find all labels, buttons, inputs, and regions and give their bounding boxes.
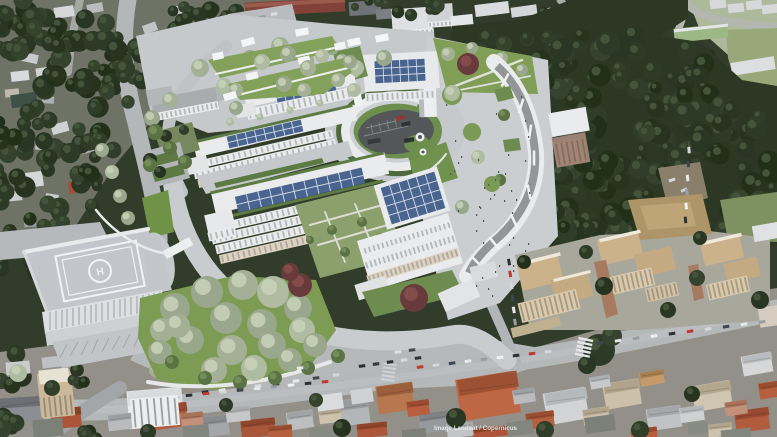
svg-text:Image Landsat / Copernicus: Image Landsat / Copernicus bbox=[434, 425, 517, 432]
